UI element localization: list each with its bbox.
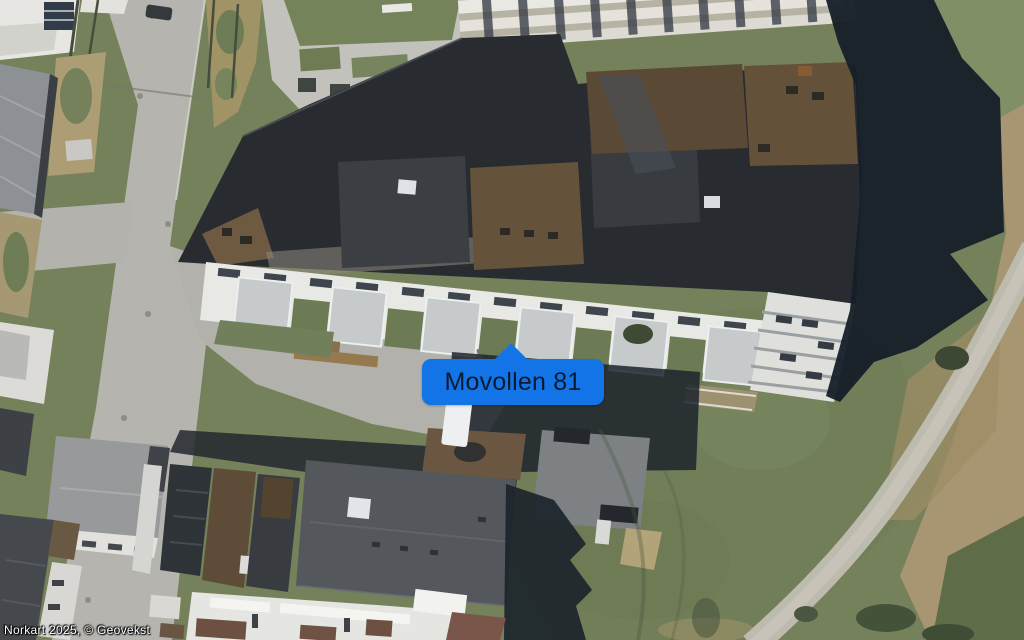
- lower-roof: [296, 460, 516, 606]
- skylight: [704, 196, 720, 208]
- map-attribution: Norkart 2025, © Geovekst: [4, 623, 150, 637]
- aerial-imagery: [0, 0, 1024, 640]
- skylight: [347, 497, 371, 519]
- skylight: [397, 179, 416, 195]
- marker-pointer-icon: [494, 343, 528, 360]
- map-viewport[interactable]: Movollen 81 Norkart 2025, © Geovekst: [0, 0, 1024, 640]
- marker-label: Movollen 81: [444, 370, 581, 395]
- address-marker[interactable]: Movollen 81: [422, 359, 604, 405]
